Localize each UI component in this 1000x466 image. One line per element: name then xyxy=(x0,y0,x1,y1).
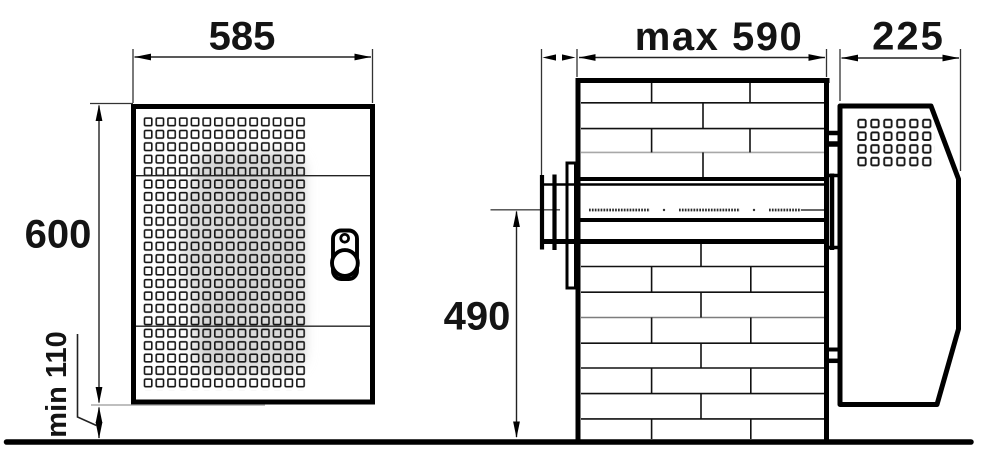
svg-text:min 110: min 110 xyxy=(41,331,73,437)
svg-text:585: 585 xyxy=(209,15,276,59)
svg-text:max 590: max 590 xyxy=(635,15,803,59)
svg-text:225: 225 xyxy=(872,15,945,59)
svg-text:600: 600 xyxy=(25,212,92,256)
svg-text:490: 490 xyxy=(444,294,511,338)
